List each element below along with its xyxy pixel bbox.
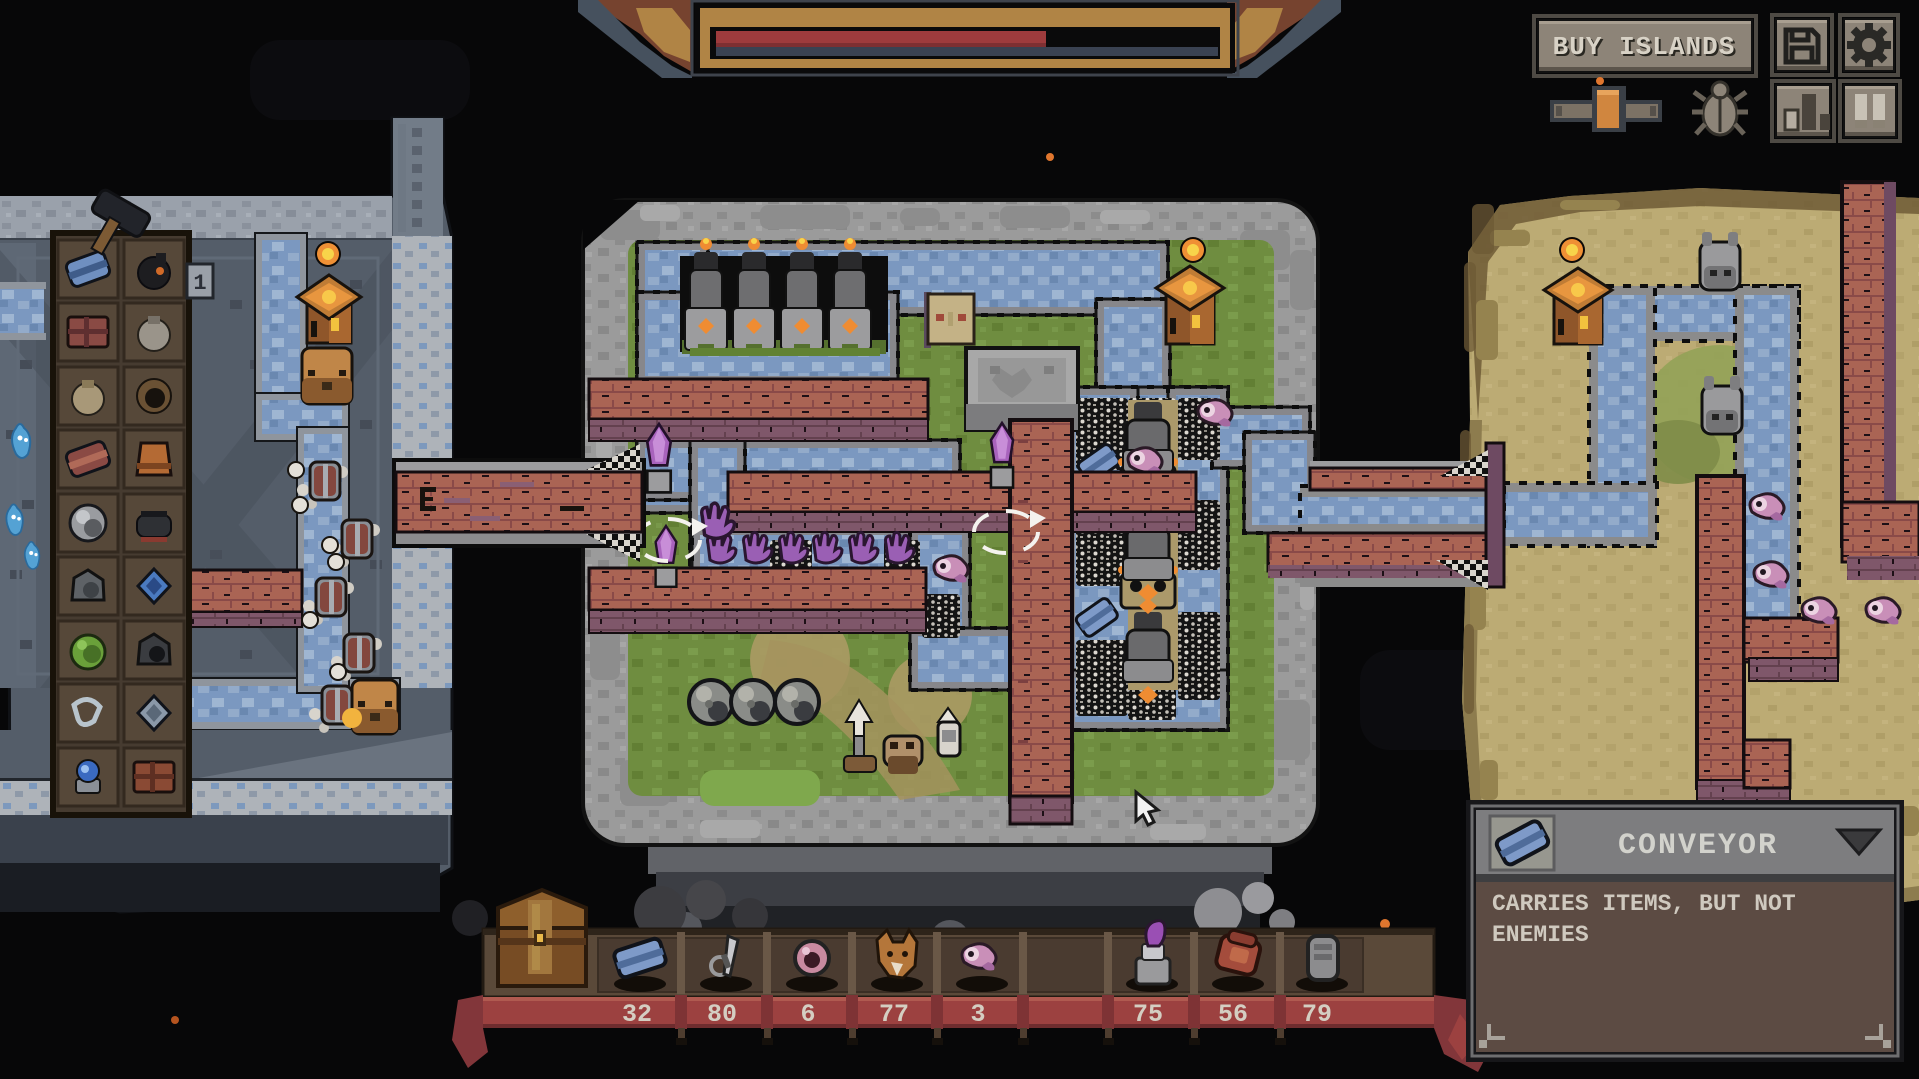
svg-text:CARRIES ITEMS, BUT NOT: CARRIES ITEMS, BUT NOT [1492,891,1796,917]
svg-text:BUY ISLANDS: BUY ISLANDS [1553,32,1736,62]
svg-text:77: 77 [879,1000,909,1029]
svg-text:80: 80 [707,1000,737,1029]
svg-text:56: 56 [1218,1000,1248,1029]
svg-text:1: 1 [193,271,206,296]
svg-text:79: 79 [1302,1000,1332,1029]
svg-text:75: 75 [1133,1000,1163,1029]
svg-text:ENEMIES: ENEMIES [1492,922,1589,948]
svg-text:6: 6 [800,1000,815,1029]
svg-text:3: 3 [970,1000,985,1029]
svg-text:CONVEYOR: CONVEYOR [1618,829,1778,863]
svg-text:32: 32 [622,1000,652,1029]
